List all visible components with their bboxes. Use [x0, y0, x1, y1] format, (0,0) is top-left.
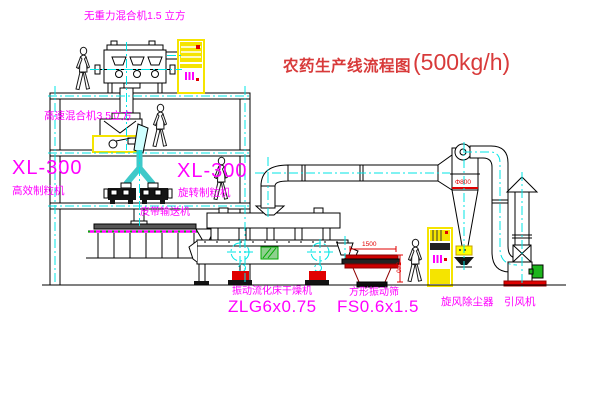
label-granulator-left-model: XL-300 — [12, 158, 83, 178]
fluid-bed-dryer — [189, 165, 358, 285]
label-sieve-model: FS0.6x1.5 — [337, 298, 419, 315]
label-granulator-left-name: 高效制粒机 — [12, 186, 65, 197]
control-cabinet-top — [178, 40, 204, 93]
title-capacity: (500kg/h) — [413, 49, 510, 76]
diagram-title: 农药生产线流程图 (500kg/h) — [283, 49, 510, 76]
label-cyclone: 旋风除尘器 — [441, 297, 494, 308]
person-figure — [76, 47, 90, 89]
label-dryer-name: 振动流化床干燥机 — [232, 287, 312, 297]
control-cabinet-ground — [428, 228, 452, 286]
person-figure — [153, 104, 167, 146]
person-figure — [408, 239, 422, 281]
belt-conveyor — [86, 224, 202, 258]
gravity-free-mixer — [95, 41, 178, 115]
dim-sieve-width: 1500 — [362, 242, 376, 249]
label-fan: 引风机 — [504, 297, 536, 308]
label-gravity-mixer: 无重力混合机1.5 立方 — [84, 11, 186, 22]
label-granulator-right-model: XL-300 — [177, 161, 248, 181]
label-high-speed-mixer: 高速混合机3.5立方 — [44, 111, 132, 122]
label-granulator-right-name: 旋转制粒机 — [178, 188, 231, 199]
label-belt-conveyor: 皮带输送机 — [140, 208, 190, 218]
granulator-right — [140, 183, 172, 204]
dim-sieve-height: 540 — [394, 262, 401, 273]
label-dryer-model: ZLG6x0.75 — [228, 298, 317, 315]
dim-cyclone-diameter: Φ800 — [455, 180, 471, 187]
induced-draft-fan — [504, 262, 546, 286]
title-text: 农药生产线流程图 — [283, 49, 411, 76]
granulator-left — [104, 183, 136, 204]
diagram-canvas: 农药生产线流程图 (500kg/h) 无重力混合机1.5 立方 高速混合机3.5… — [0, 0, 600, 403]
